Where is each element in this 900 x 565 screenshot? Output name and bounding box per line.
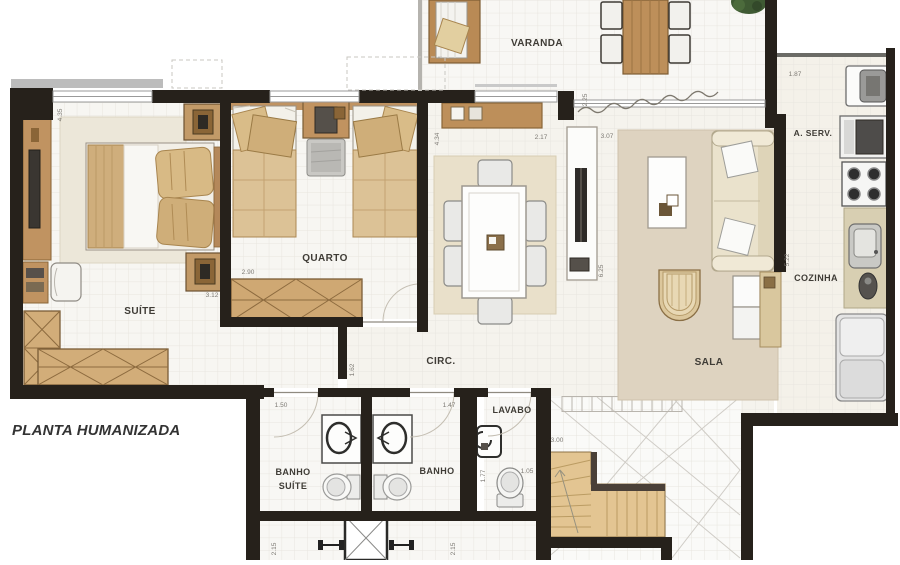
svg-text:6.25: 6.25: [598, 264, 605, 277]
svg-text:2.15: 2.15: [450, 542, 457, 555]
svg-text:CIRC.: CIRC.: [426, 356, 455, 367]
svg-text:SALA: SALA: [695, 357, 724, 368]
svg-text:3.07: 3.07: [601, 133, 614, 140]
svg-text:5.22: 5.22: [784, 253, 791, 266]
svg-text:2.25: 2.25: [582, 93, 589, 106]
svg-text:VARANDA: VARANDA: [511, 38, 563, 49]
svg-text:QUARTO: QUARTO: [302, 253, 348, 264]
svg-text:4.35: 4.35: [57, 108, 64, 121]
svg-text:1.47: 1.47: [443, 402, 456, 409]
svg-text:4.34: 4.34: [434, 132, 441, 145]
svg-text:3.12: 3.12: [206, 292, 219, 299]
svg-text:A. SERV.: A. SERV.: [794, 128, 833, 138]
svg-text:SUÍTE: SUÍTE: [124, 304, 155, 317]
svg-text:COZINHA: COZINHA: [794, 273, 838, 283]
svg-text:1.87: 1.87: [789, 71, 802, 78]
svg-text:2.17: 2.17: [535, 134, 548, 141]
svg-text:PLANTA HUMANIZADA: PLANTA HUMANIZADA: [12, 422, 180, 439]
svg-text:1.62: 1.62: [349, 363, 356, 376]
svg-text:1.77: 1.77: [480, 469, 487, 482]
svg-text:LAVABO: LAVABO: [492, 405, 531, 415]
svg-text:SUÍTE: SUÍTE: [279, 481, 308, 491]
svg-text:2.15: 2.15: [271, 542, 278, 555]
svg-text:3.00: 3.00: [551, 437, 564, 444]
svg-text:1.05: 1.05: [521, 468, 534, 475]
svg-text:1.50: 1.50: [275, 402, 288, 409]
svg-text:2.90: 2.90: [242, 269, 255, 276]
svg-text:BANHO: BANHO: [276, 467, 311, 477]
svg-text:BANHO: BANHO: [420, 466, 455, 476]
